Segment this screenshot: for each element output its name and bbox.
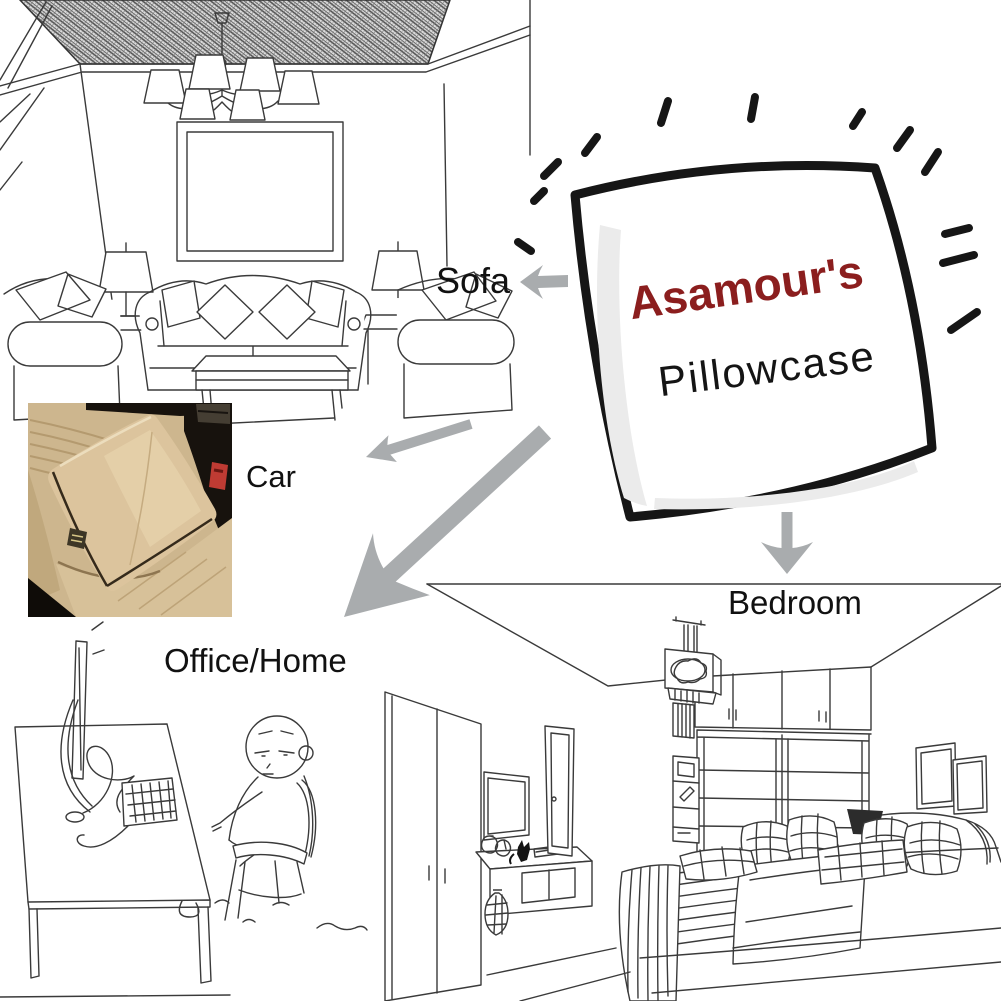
arrow-to-bedroom [761, 512, 813, 574]
car-label: Car [246, 461, 296, 492]
door-sketch [545, 726, 574, 856]
arrow-to-car [366, 419, 473, 462]
sofa-label: Sofa [436, 263, 510, 299]
office-home-label: Office/Home [164, 644, 347, 677]
living-room-sketch [0, 0, 530, 426]
bedroom-label: Bedroom [728, 586, 862, 619]
product-infographic: Sofa Car Office/Home Bedroom Asamour's P… [0, 0, 1001, 1001]
wall-frames-sketch [916, 743, 987, 814]
monitor-sketch [61, 622, 104, 812]
wall-frame-sketch [177, 122, 343, 261]
desk-sketch [15, 724, 211, 983]
car-photo [28, 403, 232, 617]
seatbelt-buckle [209, 462, 228, 490]
floor-lines [487, 948, 630, 1001]
arrow-to-sofa [520, 265, 568, 299]
tv-and-cabinet-sketch [476, 772, 592, 935]
wardrobe-sketch [385, 692, 481, 1001]
ceiling-texture [20, 0, 450, 64]
car-console [196, 404, 230, 424]
bedroom-sketch [385, 584, 1001, 1001]
armchair-left-sketch [4, 272, 122, 424]
artwork [0, 0, 1001, 1001]
